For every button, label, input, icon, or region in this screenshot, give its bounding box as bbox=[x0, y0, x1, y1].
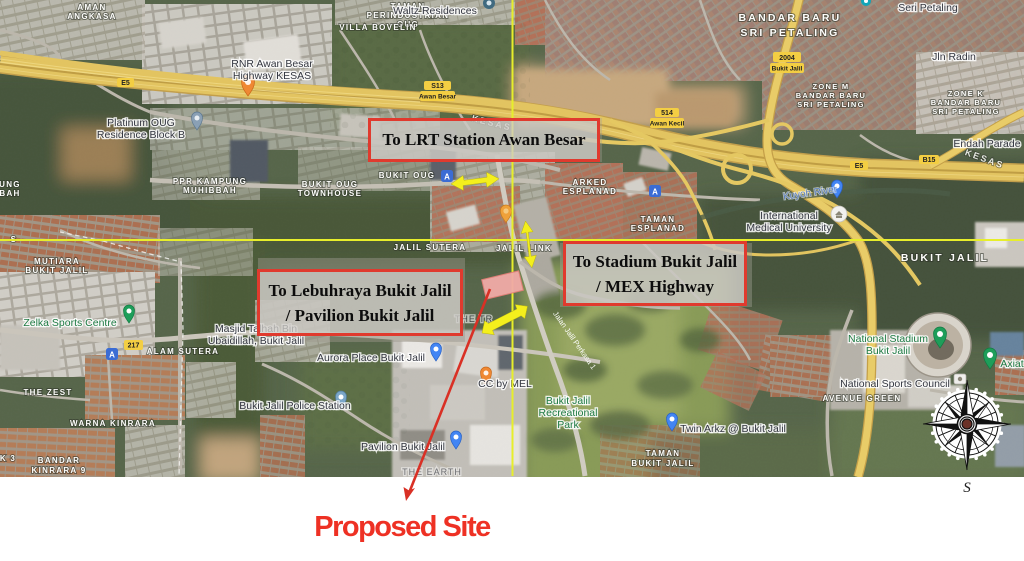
svg-text:S: S bbox=[963, 480, 971, 496]
